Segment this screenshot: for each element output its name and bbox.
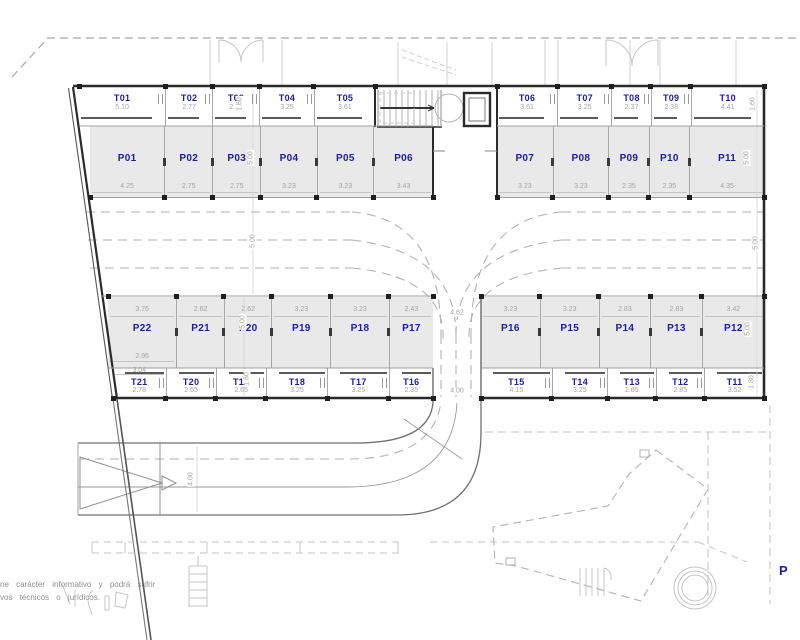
storage-front-wall xyxy=(654,117,678,119)
door-jamb xyxy=(162,94,163,104)
storage-room-T01: T015.10 xyxy=(79,88,165,126)
storage-room-T09: T092.38 xyxy=(651,88,691,126)
unit-width-dim: 3.23 xyxy=(554,183,609,190)
parking-stall-P14: 2.83P14 xyxy=(599,297,651,369)
unit-label: T09 xyxy=(652,93,691,103)
parking-stall-P17: 2.43P17 xyxy=(389,297,433,369)
column-marker xyxy=(479,396,484,401)
unit-label: P10 xyxy=(650,153,689,164)
dim-line xyxy=(92,192,162,193)
dim-line xyxy=(543,316,597,317)
column-marker xyxy=(700,328,703,336)
unit-width-dim: 2.62 xyxy=(177,306,224,313)
dim-line xyxy=(115,374,164,375)
unit-width-dim: 3.61 xyxy=(497,104,557,111)
unit-width-dim: 3.23 xyxy=(331,306,389,313)
column-marker xyxy=(495,195,500,200)
storage-front-wall xyxy=(125,372,164,374)
column-marker xyxy=(607,158,610,166)
storage-front-wall xyxy=(620,372,654,374)
row-bottom-parking-right: 3.23P163.23P152.83P142.83P133.42P12 xyxy=(481,297,764,369)
unit-label: P12 xyxy=(703,323,764,334)
unit-width-dim: 2.43 xyxy=(390,306,433,313)
column-marker xyxy=(687,195,692,200)
unit-width-dim: 2.35 xyxy=(609,183,648,190)
column-marker xyxy=(431,294,436,299)
column-marker xyxy=(495,84,500,89)
parking-stall-P10: P102.35 xyxy=(649,126,689,198)
storage-room-T14: T143.25 xyxy=(552,368,607,398)
unit-label: P09 xyxy=(609,153,648,164)
parking-stall-P09: P092.35 xyxy=(608,126,648,198)
door-jamb xyxy=(604,94,605,104)
column-marker xyxy=(538,328,541,336)
column-marker xyxy=(371,195,376,200)
column-marker xyxy=(221,294,226,299)
elevator-icon xyxy=(464,93,490,126)
parking-stall-P13: 2.83P13 xyxy=(650,297,702,369)
column-marker xyxy=(258,195,263,200)
storage-front-wall xyxy=(402,372,431,374)
column-marker xyxy=(431,396,436,401)
column-marker xyxy=(163,158,166,166)
column-marker xyxy=(315,158,318,166)
column-marker xyxy=(328,294,333,299)
door-jamb xyxy=(653,378,654,388)
row-top-storage-left: T015.10T022.77T032.78T043.25T053.61 xyxy=(79,88,375,126)
disclaimer-text: ne carácter informativo y podrá sufrir v… xyxy=(0,578,155,604)
column-marker xyxy=(175,328,178,336)
dim-line xyxy=(227,316,270,317)
parking-stall-P11: P114.35 xyxy=(689,126,764,198)
door-jamb xyxy=(382,378,383,388)
unit-width-dim: 2.75 xyxy=(165,183,212,190)
unit-width-dim: 3.76 xyxy=(108,306,176,313)
storage-front-wall xyxy=(669,372,703,374)
unit-width-dim: 2.78 xyxy=(113,387,166,394)
door-jamb xyxy=(311,94,312,104)
dim-line xyxy=(556,192,607,193)
parking-stall-P16: 3.23P16 xyxy=(481,297,540,369)
pool-outline xyxy=(493,450,708,601)
unit-width-dim: 2.65 xyxy=(217,387,266,394)
column-marker xyxy=(257,84,262,89)
column-marker xyxy=(270,328,273,336)
column-marker xyxy=(649,328,652,336)
door-jamb xyxy=(644,94,645,104)
parking-stall-P15: 3.23P15 xyxy=(540,297,599,369)
unit-label: P06 xyxy=(374,153,433,164)
door-jamb xyxy=(209,94,210,104)
door-jamb xyxy=(158,94,159,104)
parking-stall-P20: 2.62P20 xyxy=(224,297,272,369)
unit-label: T16 xyxy=(390,377,433,387)
unit-label: P08 xyxy=(554,153,609,164)
door-jamb xyxy=(684,94,685,104)
unit-width-dim: 3.23 xyxy=(541,306,599,313)
unit-width-dim: 2.83 xyxy=(600,306,651,313)
column-marker xyxy=(647,158,650,166)
door-jamb xyxy=(648,94,649,104)
dim-line xyxy=(602,316,649,317)
unit-label: T01 xyxy=(79,93,165,103)
column-marker xyxy=(210,195,215,200)
unit-label: P13 xyxy=(651,323,702,334)
dim-line xyxy=(179,316,222,317)
column-marker xyxy=(646,195,651,200)
door-jamb xyxy=(256,94,257,104)
dim-line xyxy=(263,192,314,193)
door-jamb xyxy=(550,94,551,104)
column-marker xyxy=(387,328,390,336)
unit-width-dim: 2.62 xyxy=(225,306,272,313)
dim-line xyxy=(110,361,174,362)
floor-plan: ne carácter informativo y podrá sufrir v… xyxy=(0,0,800,640)
unit-label: T07 xyxy=(558,93,611,103)
dim-line xyxy=(376,192,431,193)
column-marker xyxy=(213,396,218,401)
column-marker xyxy=(597,328,600,336)
column-marker xyxy=(762,84,767,89)
storage-front-wall xyxy=(279,372,325,374)
column-marker xyxy=(606,195,611,200)
unit-width-dim: 4.25 xyxy=(90,183,164,190)
door-jamb xyxy=(545,378,546,388)
parking-stall-P18: 3.23P18 xyxy=(330,297,389,369)
double-door-icon xyxy=(219,40,658,66)
unit-width-dim: 2.83 xyxy=(651,306,702,313)
disclaimer-line-2: vos técnicos o jurídicos. xyxy=(0,591,155,604)
unit-width-dim: 2.75 xyxy=(213,183,260,190)
dim-line xyxy=(611,192,646,193)
unit-width-dim: 3.42 xyxy=(703,306,764,313)
storage-front-wall xyxy=(317,117,362,119)
turning-circle xyxy=(435,94,463,122)
unit-width-dim: 3.25 xyxy=(260,104,314,111)
storage-room-T06: T063.61 xyxy=(497,88,557,126)
unit-label: P18 xyxy=(331,323,389,334)
column-marker xyxy=(311,84,316,89)
parking-stall-P04: P043.23 xyxy=(260,126,316,198)
unit-label: P04 xyxy=(261,153,316,164)
column-marker xyxy=(596,294,601,299)
unit-width-dim: 3.25 xyxy=(553,387,607,394)
door-jamb xyxy=(649,378,650,388)
column-marker xyxy=(259,158,262,166)
column-marker xyxy=(699,294,704,299)
column-marker xyxy=(479,294,484,299)
column-marker xyxy=(211,158,214,166)
door-jamb xyxy=(701,378,702,388)
storage-front-wall xyxy=(81,117,152,119)
column-marker xyxy=(762,396,767,401)
unit-label: T05 xyxy=(315,93,375,103)
storage-room-T04: T043.25 xyxy=(259,88,314,126)
dimension-t10-depth: 1.60 xyxy=(750,96,757,112)
storage-room-T18: T183.25 xyxy=(266,368,327,398)
unit-width-dim: 2.77 xyxy=(166,104,212,111)
column-marker xyxy=(263,396,268,401)
dimension-aisle-width-right: 5.00 xyxy=(753,235,760,251)
dimension-p20-depth: 5.00 xyxy=(240,314,247,330)
unit-width-dim: 2.85 xyxy=(608,387,656,394)
spa-circles xyxy=(674,567,716,609)
storage-front-wall xyxy=(215,117,246,119)
unit-label: T04 xyxy=(260,93,314,103)
door-jamb xyxy=(324,378,325,388)
unit-width-dim: 2.85 xyxy=(657,387,705,394)
storage-front-wall xyxy=(565,372,605,374)
ramp-arrow xyxy=(80,443,176,515)
unit-label: P14 xyxy=(600,323,651,334)
dimension-aisle-width-left: 5.00 xyxy=(250,233,257,249)
unit-label: P05 xyxy=(318,153,373,164)
unit-width-dim: 3.43 xyxy=(374,183,433,190)
door-jamb xyxy=(549,378,550,388)
parking-stall-P05: P053.23 xyxy=(317,126,373,198)
door-jamb xyxy=(252,94,253,104)
dimension-p03-depth: 5.00 xyxy=(248,150,255,166)
column-marker xyxy=(653,396,658,401)
column-marker xyxy=(550,195,555,200)
door-jamb xyxy=(163,378,164,388)
parking-stall-P01: P014.25 xyxy=(90,126,164,198)
dim-line xyxy=(692,192,762,193)
unit-label: P20 xyxy=(225,323,272,334)
column-marker xyxy=(88,195,93,200)
column-marker xyxy=(555,84,560,89)
door-jamb xyxy=(320,378,321,388)
storage-front-wall xyxy=(614,117,638,119)
dim-line xyxy=(333,316,387,317)
storage-front-wall xyxy=(499,117,544,119)
dimension-road-width: 4.00 xyxy=(188,471,195,487)
column-marker xyxy=(549,396,554,401)
dimension-t19-depth: 1.80 xyxy=(244,371,251,387)
unit-label: P01 xyxy=(90,153,164,164)
column-marker xyxy=(609,84,614,89)
dim-line xyxy=(705,316,762,317)
dim-line xyxy=(499,192,551,193)
door-jamb xyxy=(205,94,206,104)
column-marker xyxy=(174,294,179,299)
dimension-t03-depth: 1.60 xyxy=(237,96,244,112)
site-boundary xyxy=(12,38,798,77)
unit-width-dim: 3.25 xyxy=(558,104,611,111)
door-jamb xyxy=(307,94,308,104)
dim-line xyxy=(652,192,687,193)
unit-width-dim: 2.35 xyxy=(390,387,433,394)
unit-width-dim: 2.65 xyxy=(167,387,216,394)
unit-label: T06 xyxy=(497,93,557,103)
unit-width-dim: 3.23 xyxy=(497,183,553,190)
column-marker xyxy=(111,396,116,401)
parking-stall-P08: P083.23 xyxy=(553,126,609,198)
door-jamb xyxy=(386,378,387,388)
column-marker xyxy=(762,294,767,299)
dimension-ramp-width: 4.62 xyxy=(449,310,465,317)
door-jamb xyxy=(697,378,698,388)
unit-label: P22 xyxy=(108,323,176,334)
unit-width-dim: 3.61 xyxy=(315,104,375,111)
storage-front-wall xyxy=(179,372,214,374)
storage-front-wall xyxy=(694,117,752,119)
parking-stall-P21: 2.62P21 xyxy=(176,297,224,369)
storage-room-T17: T173.25 xyxy=(327,368,388,398)
dim-line xyxy=(274,316,328,317)
parking-stall-P12: 3.42P12 xyxy=(702,297,764,369)
unit-label: P07 xyxy=(497,153,553,164)
unit-label: P19 xyxy=(272,323,330,334)
column-marker xyxy=(325,396,330,401)
dimension-t11-depth: 1.80 xyxy=(749,374,756,390)
storage-front-wall xyxy=(493,372,550,374)
unit-extra-dim: 2.96 xyxy=(108,353,176,360)
unit-width-dim: 2.37 xyxy=(612,104,651,111)
row-top-parking-right: P073.23P083.23P092.35P102.35P114.35 xyxy=(497,126,764,198)
column-marker xyxy=(372,158,375,166)
parking-stall-P22: 3.76P222.96 xyxy=(108,297,176,369)
unit-label: P15 xyxy=(541,323,599,334)
column-marker xyxy=(210,84,215,89)
parking-stall-P06: P063.43 xyxy=(373,126,433,198)
dim-line xyxy=(653,316,700,317)
door-jamb xyxy=(213,378,214,388)
unit-width-dim: 3.25 xyxy=(267,387,327,394)
unit-label: P02 xyxy=(165,153,212,164)
storage-room-T08: T082.37 xyxy=(611,88,651,126)
storage-room-T07: T073.25 xyxy=(557,88,611,126)
column-marker xyxy=(431,195,436,200)
dimension-p12-depth: 5.00 xyxy=(745,321,752,337)
unit-width-dim: 4.15 xyxy=(481,387,552,394)
column-marker xyxy=(648,294,653,299)
dimension-ramp-exit-width: 4.00 xyxy=(449,388,465,395)
access-road xyxy=(78,398,481,515)
dim-line xyxy=(167,192,210,193)
storage-room-T15: T154.15 xyxy=(481,368,552,398)
storage-front-wall xyxy=(560,117,598,119)
parking-stall-P07: P073.23 xyxy=(497,126,553,198)
column-marker xyxy=(106,294,111,299)
column-marker xyxy=(269,294,274,299)
dimension-p11-depth: 5.00 xyxy=(744,150,751,166)
unit-width-dim: 3.23 xyxy=(272,306,330,313)
unit-label: P11 xyxy=(690,153,764,164)
column-marker xyxy=(386,294,391,299)
unit-width-dim: 3.23 xyxy=(261,183,316,190)
column-marker xyxy=(163,84,168,89)
column-marker xyxy=(163,396,168,401)
dim-line xyxy=(110,316,174,317)
ghost-lower-terrace xyxy=(62,542,747,614)
dim-line xyxy=(392,316,431,317)
row-top-storage-right: T063.61T073.25T082.37T092.38T104.41 xyxy=(497,88,764,126)
door-jamb xyxy=(263,378,264,388)
door-jamb xyxy=(159,378,160,388)
storage-front-wall xyxy=(340,372,386,374)
unit-label: P16 xyxy=(481,323,540,334)
door-jamb xyxy=(688,94,689,104)
column-marker xyxy=(762,195,767,200)
parking-stall-P19: 3.23P19 xyxy=(271,297,330,369)
unit-label: T17 xyxy=(328,377,388,387)
stair-icon xyxy=(378,90,441,127)
storage-front-wall xyxy=(168,117,199,119)
column-marker xyxy=(648,84,653,89)
column-marker xyxy=(551,158,554,166)
storage-room-T05: T053.61 xyxy=(314,88,375,126)
plot-dashed-lines xyxy=(485,405,770,604)
unit-width-dim: 2.38 xyxy=(652,104,691,111)
door-jamb xyxy=(608,94,609,104)
unit-label: T14 xyxy=(553,377,607,387)
dim-line xyxy=(483,316,538,317)
door-jamb xyxy=(604,378,605,388)
column-marker xyxy=(162,195,167,200)
column-marker xyxy=(314,195,319,200)
column-marker xyxy=(702,396,707,401)
sheet-corner-label: P xyxy=(779,563,788,578)
unit-label: P17 xyxy=(390,323,433,334)
ghost-upper-floor xyxy=(210,40,736,86)
door-jamb xyxy=(209,378,210,388)
door-jamb xyxy=(554,94,555,104)
disclaimer-line-1: ne carácter informativo y podrá sufrir xyxy=(0,578,155,591)
unit-label: T08 xyxy=(612,93,651,103)
column-marker xyxy=(373,84,378,89)
column-marker xyxy=(605,396,610,401)
column-marker xyxy=(688,158,691,166)
unit-label: T18 xyxy=(267,377,327,387)
column-marker xyxy=(329,328,332,336)
unit-width-dim: 3.23 xyxy=(318,183,373,190)
column-marker xyxy=(77,84,82,89)
column-marker xyxy=(222,328,225,336)
unit-label: P21 xyxy=(177,323,224,334)
door-jamb xyxy=(259,378,260,388)
dim-line xyxy=(320,192,371,193)
unit-width-dim: 4.35 xyxy=(690,183,764,190)
unit-label: T15 xyxy=(481,377,552,387)
column-marker xyxy=(688,84,693,89)
door-jamb xyxy=(600,378,601,388)
stairs-icon xyxy=(580,568,611,596)
dim-line xyxy=(215,192,258,193)
unit-width-dim: 3.25 xyxy=(328,387,388,394)
unit-width-dim: 3.23 xyxy=(481,306,540,313)
parking-stall-P02: P022.75 xyxy=(164,126,212,198)
column-marker xyxy=(537,294,542,299)
column-marker xyxy=(386,396,391,401)
storage-front-wall xyxy=(262,117,301,119)
unit-width-dim: 5.10 xyxy=(79,104,165,111)
storage-room-T16: T162.35 xyxy=(389,368,433,398)
stairs-icon xyxy=(189,556,207,607)
unit-width-dim: 2.35 xyxy=(650,183,689,190)
row-bottom-storage-right: T154.15T143.25T132.85T122.85T113.52 xyxy=(481,368,764,398)
